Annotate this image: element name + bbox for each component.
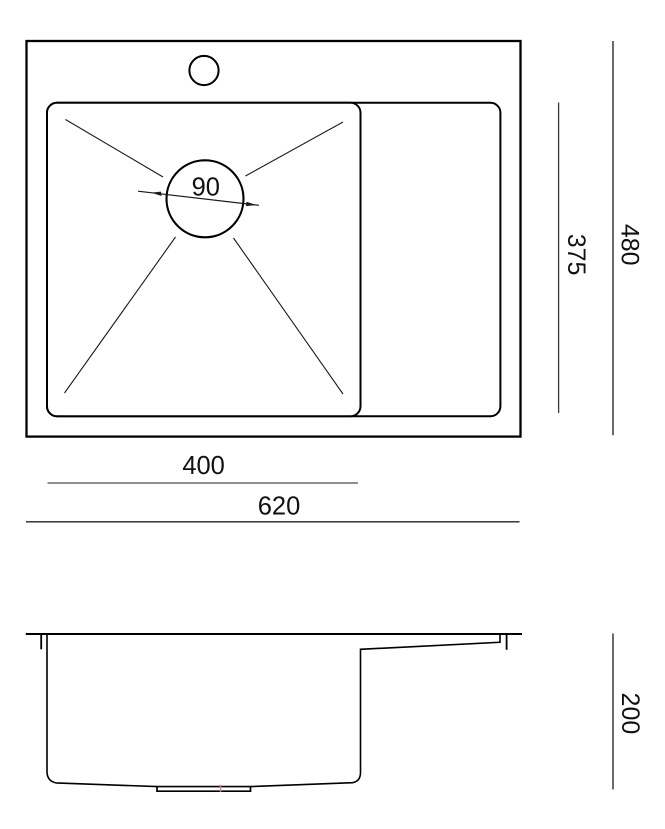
svg-text:620: 620 (258, 493, 301, 521)
svg-text:200: 200 (616, 693, 644, 735)
svg-text:375: 375 (562, 234, 590, 276)
svg-text:90: 90 (192, 173, 220, 201)
svg-text:480: 480 (615, 224, 643, 266)
svg-text:400: 400 (182, 452, 225, 480)
